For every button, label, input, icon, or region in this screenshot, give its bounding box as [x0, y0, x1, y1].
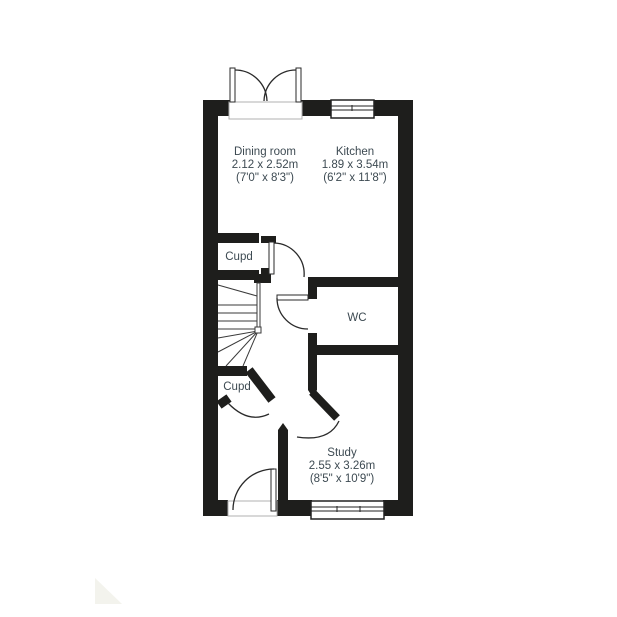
room-name: Study	[327, 447, 357, 459]
kitchen-label: Kitchen 1.89 x 3.54m (6'2" x 11'8")	[322, 146, 388, 184]
door-leaf	[269, 242, 274, 274]
door-leaf	[277, 295, 308, 300]
dining-room-label: Dining room 2.12 x 2.52m (7'0" x 8'3")	[232, 146, 298, 184]
wall-segment	[277, 500, 312, 516]
angled-door-leaf	[249, 370, 272, 400]
room-name: Dining room	[234, 146, 296, 158]
cupboard-label-bottom: Cupd	[223, 381, 251, 393]
door-leaf	[230, 68, 235, 102]
wall-segment	[398, 100, 413, 516]
room-size-imperial: (6'2" x 11'8")	[323, 172, 387, 184]
watermark-triangle	[95, 578, 122, 604]
floor-plan: Dining room 2.12 x 2.52m (7'0" x 8'3") K…	[0, 0, 617, 617]
room-size-metric: 2.55 x 3.26m	[309, 460, 375, 472]
study-label: Study 2.55 x 3.26m (8'5" x 10'9")	[309, 447, 375, 485]
wall-segment	[308, 277, 398, 287]
angled-door-leaf	[312, 392, 337, 418]
door-swing-arc	[235, 70, 267, 101]
wc-label: WC	[347, 312, 366, 324]
patio-door-threshold	[229, 102, 302, 119]
hall-cupboard-door	[269, 242, 304, 277]
door-swing-arc	[228, 403, 269, 417]
wall-segment	[299, 100, 332, 116]
door-leaf	[296, 68, 301, 102]
room-size-metric: 1.89 x 3.54m	[322, 159, 388, 171]
door-swing-arc	[264, 70, 296, 101]
room-name: Kitchen	[336, 146, 374, 158]
floor-plan-page: Dining room 2.12 x 2.52m (7'0" x 8'3") K…	[0, 0, 617, 617]
wall-segment	[308, 345, 398, 355]
under-stairs-cupboard-door	[228, 403, 269, 417]
stair-newel	[255, 327, 261, 333]
wall-segment	[218, 270, 259, 280]
wc-door	[277, 295, 308, 329]
room-size-imperial: (7'0" x 8'3")	[236, 172, 294, 184]
wall-segment	[218, 233, 259, 243]
french-doors	[230, 68, 301, 102]
study-window	[311, 501, 384, 519]
study-door	[297, 421, 339, 438]
wall-segment	[278, 423, 288, 500]
wall-segment	[383, 500, 413, 516]
cupboard-label-top: Cupd	[225, 251, 253, 263]
wall-segment	[308, 277, 317, 299]
room-size-imperial: (8'5" x 10'9")	[310, 473, 375, 485]
room-size-metric: 2.12 x 2.52m	[232, 159, 298, 171]
wall-segment	[203, 500, 228, 516]
staircase	[218, 283, 261, 366]
front-door-threshold	[228, 501, 277, 516]
door-swing-arc	[274, 243, 304, 277]
door-jamb	[219, 398, 229, 405]
door-swing-arc	[297, 421, 339, 438]
wall-segment	[203, 100, 218, 516]
wall-segment	[218, 366, 247, 376]
door-swing-arc	[277, 298, 308, 329]
door-leaf	[271, 469, 276, 511]
kitchen-window	[331, 100, 374, 118]
